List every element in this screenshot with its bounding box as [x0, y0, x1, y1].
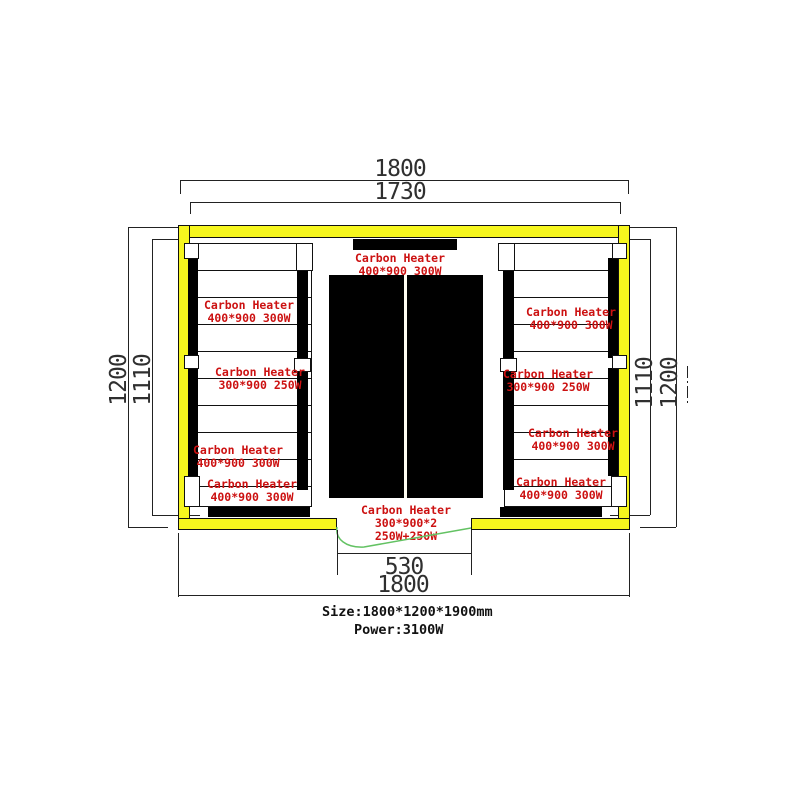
- dim-tick: [180, 180, 181, 194]
- dim-bottom-ext: [178, 533, 179, 597]
- heater-label-left-1: Carbon Heater 400*900 300W: [193, 299, 305, 325]
- bench-notch: [184, 355, 199, 369]
- bench-bottom-heater-bar: [208, 507, 310, 517]
- heater-bar: [503, 271, 514, 360]
- dim-tick: [128, 227, 178, 228]
- wall-bottom-left: [178, 518, 337, 530]
- heater-label-left-2: Carbon Heater 300*900 250W: [204, 366, 316, 392]
- heater-label-right-4: Carbon Heater 400*900 300W: [505, 476, 617, 502]
- dim-bottom-label: 1800: [343, 572, 463, 598]
- heater-label-left-3: Carbon Heater 400*900 300W: [182, 444, 294, 470]
- center-top-heater-bar: [353, 239, 457, 250]
- heater-label-left-4: Carbon Heater 400*900 300W: [196, 478, 308, 504]
- heater-bar: [608, 368, 618, 476]
- bench-notch: [184, 243, 199, 259]
- dim-tick: [190, 202, 191, 214]
- bench-notch: [612, 243, 627, 259]
- bench-bottom-heater-bar: [500, 507, 602, 517]
- centerline-mark: [687, 366, 688, 404]
- bench-notch: [612, 355, 627, 369]
- dim-tick: [630, 227, 676, 228]
- dim-tick: [620, 202, 621, 214]
- dim-right-inner-label: 1110: [632, 357, 658, 408]
- bench-notch: [498, 243, 515, 271]
- heater-label-right-1: Carbon Heater 400*900 300W: [515, 306, 627, 332]
- power-spec-text: Power:3100W: [354, 622, 443, 638]
- dim-left-inner-label: 1110: [130, 354, 156, 405]
- door-swing-leader-line: [330, 515, 480, 555]
- heater-label-right-3: Carbon Heater 400*900 300W: [517, 427, 629, 453]
- size-spec-text: Size:1800*1200*1900mm: [322, 604, 493, 620]
- heater-label-right-2: Carbon Heater 300*900 250W: [492, 368, 604, 394]
- dim-top-inner-line: [190, 202, 621, 203]
- sauna-floorplan-drawing: 1800 1730 1200 1110 1110 1200: [0, 0, 800, 800]
- panel-divider: [404, 275, 407, 498]
- dim-right-outer-label: 1200: [657, 357, 683, 408]
- heater-label-center-top: Carbon Heater 400*900 300W: [344, 252, 456, 278]
- dim-tick: [640, 527, 676, 528]
- wall-bottom-right: [471, 518, 630, 530]
- dim-left-outer-label: 1200: [106, 354, 132, 405]
- dim-tick: [128, 527, 168, 528]
- dim-tick: [152, 515, 200, 516]
- dim-tick: [628, 180, 629, 194]
- center-panel-block: [329, 275, 483, 498]
- bench-notch: [296, 243, 313, 271]
- wall-top: [178, 225, 630, 238]
- dim-tick: [610, 515, 650, 516]
- dim-bottom-ext: [629, 533, 630, 597]
